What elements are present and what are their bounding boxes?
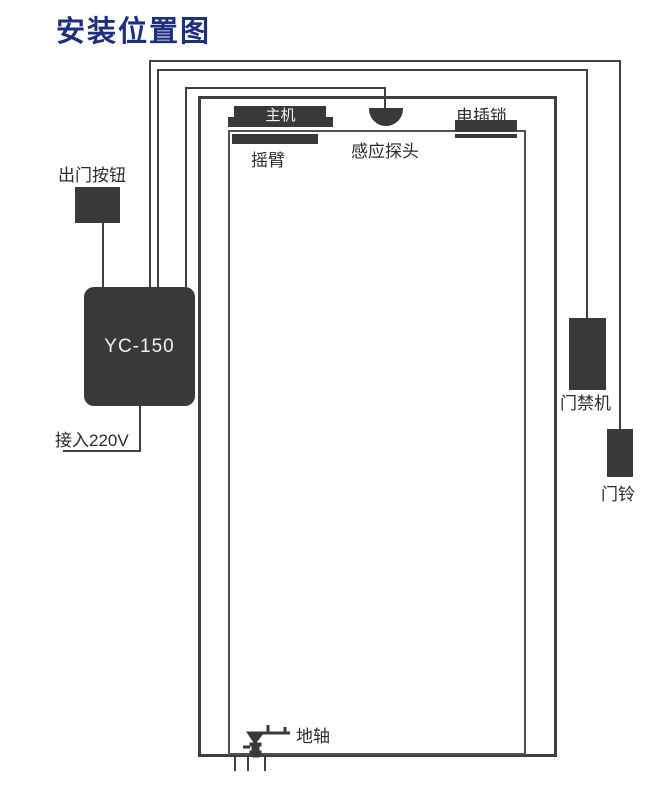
swing-arm-label: 摇臂 — [251, 146, 285, 171]
controller-box: YC-150 — [84, 287, 195, 406]
wire-exit-button — [102, 223, 104, 287]
floor-pivot-label: 地轴 — [296, 722, 330, 747]
wire-doorbell-left — [149, 60, 151, 287]
doorbell-unit — [607, 429, 633, 477]
access-control-unit — [569, 318, 606, 390]
ground-tick — [234, 756, 236, 771]
main-unit: 主机 — [228, 106, 333, 127]
sensor-label: 感应探头 — [351, 137, 419, 162]
main-unit-label: 主机 — [228, 106, 333, 127]
doorbell-label: 门铃 — [601, 480, 635, 505]
wire-sensor-top — [185, 87, 386, 89]
wire-access-top — [157, 69, 588, 71]
page-title: 安装位置图 — [56, 8, 211, 50]
electric-lock-bar — [455, 120, 517, 132]
wire-power-down — [139, 405, 141, 452]
wire-doorbell-top — [149, 60, 621, 62]
wire-doorbell-right — [619, 60, 621, 429]
electric-lock-strip — [455, 134, 517, 138]
floor-pivot-icon — [228, 710, 294, 758]
ground-tick — [247, 756, 249, 771]
door-leaf-inner — [228, 130, 526, 755]
ground-tick — [264, 756, 266, 771]
wire-access-right — [586, 69, 588, 318]
exit-button — [75, 187, 120, 223]
wire-sensor-left — [185, 87, 187, 287]
swing-arm-bar — [232, 134, 318, 144]
installation-diagram: 安装位置图 出门按钮 YC-150 接入220V 主机 摇臂 感应探头 电插锁 … — [0, 0, 659, 810]
power-label: 接入220V — [55, 426, 129, 451]
wire-access-left — [157, 69, 159, 287]
access-control-label: 门禁机 — [560, 389, 611, 414]
exit-button-label: 出门按钮 — [58, 161, 126, 186]
controller-model-label: YC-150 — [104, 336, 174, 358]
